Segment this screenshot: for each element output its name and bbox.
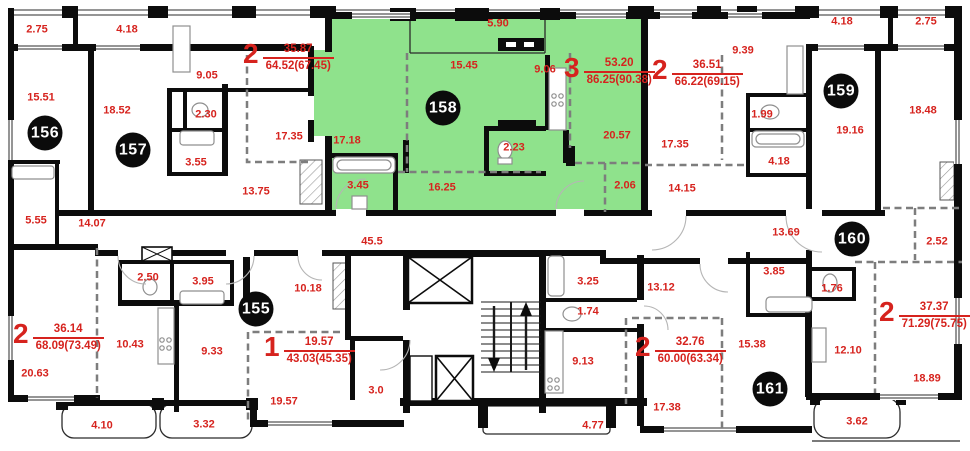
unit-number-badge[interactable]: 159: [824, 74, 859, 109]
room-area-label: 5.55: [25, 216, 46, 227]
unit-number-badge[interactable]: 157: [116, 133, 151, 168]
room-area-label: 18.48: [909, 106, 937, 117]
room-area-label: 3.25: [577, 277, 598, 288]
room-area-label: 15.38: [738, 340, 766, 351]
room-area-label: 3.32: [193, 420, 214, 431]
unit-number-badge[interactable]: 155: [239, 292, 274, 327]
room-area-label: 3.85: [763, 267, 784, 278]
room-area-label: 19.57: [270, 397, 298, 408]
room-area-label: 5.90: [487, 19, 508, 30]
apartment-type-label: 236.5166.22(69.15): [652, 58, 743, 89]
room-area-label: 2.75: [915, 17, 936, 28]
room-area-label: 16.25: [428, 183, 456, 194]
apartment-total-area: 68.09(73.49): [33, 337, 104, 353]
room-area-label: 17.38: [653, 403, 681, 414]
room-area-label: 9.06: [534, 65, 555, 76]
room-area-label: 13.12: [647, 283, 675, 294]
apartment-type-label: 235.8764.52(67.45): [243, 42, 334, 73]
room-area-label: 20.63: [21, 369, 49, 380]
apartment-rooms-count: 2: [13, 322, 29, 346]
room-area-label: 14.07: [78, 219, 106, 230]
room-area-label: 17.35: [275, 132, 303, 143]
room-area-label: 2.50: [137, 273, 158, 284]
room-area-label: 15.45: [450, 61, 478, 72]
room-area-label: 1.99: [751, 110, 772, 121]
unit-number-badge[interactable]: 156: [28, 116, 63, 151]
room-area-label: 15.51: [27, 93, 55, 104]
apartment-type-label: 237.3771.29(75.75): [879, 300, 970, 331]
room-area-label: 4.18: [116, 25, 137, 36]
room-area-label: 10.43: [116, 340, 144, 351]
apartment-living-area: 19.57: [302, 336, 337, 350]
apartment-total-area: 86.25(90.38): [584, 71, 655, 87]
room-area-label: 2.30: [195, 110, 216, 121]
room-area-label: 2.06: [614, 181, 635, 192]
vent-shaft: [142, 247, 172, 261]
room-area-label: 18.52: [103, 106, 131, 117]
room-area-label: 18.89: [913, 374, 941, 385]
apartment-living-area: 36.51: [690, 59, 725, 73]
room-area-label: 1.76: [821, 284, 842, 295]
apartment-total-area: 64.52(67.45): [263, 57, 334, 73]
room-area-label: 3.95: [192, 277, 213, 288]
room-area-label: 4.10: [91, 421, 112, 432]
apartment-total-area: 43.03(45.35): [284, 350, 355, 366]
apartment-living-area: 53.20: [602, 57, 637, 71]
room-area-label: 2.23: [503, 143, 524, 154]
apartment-total-area: 71.29(75.75): [899, 315, 970, 331]
room-area-label: 4.18: [831, 17, 852, 28]
room-area-label: 4.77: [582, 421, 603, 432]
room-area-label: 2.75: [26, 25, 47, 36]
room-area-label: 4.18: [768, 157, 789, 168]
room-area-label: 1.74: [577, 307, 598, 318]
room-area-label: 9.05: [196, 71, 217, 82]
apartment-living-area: 35.87: [281, 43, 316, 57]
apartment-rooms-count: 2: [879, 300, 895, 324]
room-area-label: 3.45: [347, 181, 368, 192]
room-area-label: 3.62: [846, 417, 867, 428]
apartment-type-label: 119.5743.03(45.35): [264, 335, 355, 366]
elevator-shafts: [408, 257, 473, 401]
staircase: [481, 302, 541, 372]
apartment-rooms-count: 2: [243, 42, 259, 66]
apartment-living-area: 36.14: [51, 323, 86, 337]
room-area-label: 13.75: [242, 187, 270, 198]
apartment-total-area: 60.00(63.34): [655, 350, 726, 366]
apartment-type-label: 353.2086.25(90.38): [564, 56, 655, 87]
floor-plan: 2.754.1815.5118.529.052.303.5517.3513.75…: [0, 0, 970, 451]
unit-number-badge[interactable]: 160: [835, 222, 870, 257]
unit-number-badge[interactable]: 158: [426, 91, 461, 126]
apartment-total-area: 66.22(69.15): [672, 73, 743, 89]
room-area-label: 9.13: [572, 357, 593, 368]
unit-number-badge[interactable]: 161: [753, 372, 788, 407]
room-area-label: 10.18: [294, 284, 322, 295]
room-area-label: 3.0: [368, 386, 383, 397]
apartment-rooms-count: 1: [264, 335, 280, 359]
room-area-label: 17.18: [333, 136, 361, 147]
room-area-label: 45.5: [361, 237, 382, 248]
room-area-label: 19.16: [836, 126, 864, 137]
room-area-label: 9.33: [201, 347, 222, 358]
apartment-rooms-count: 3: [564, 56, 580, 80]
room-area-label: 14.15: [668, 184, 696, 195]
apartment-rooms-count: 2: [635, 335, 651, 359]
room-area-label: 3.55: [185, 158, 206, 169]
room-area-label: 9.39: [732, 46, 753, 57]
room-area-label: 2.52: [926, 237, 947, 248]
apartment-living-area: 32.76: [673, 336, 708, 350]
apartment-rooms-count: 2: [652, 58, 668, 82]
floor-plan-drawing: [0, 0, 970, 451]
room-area-label: 12.10: [834, 346, 862, 357]
room-area-label: 20.57: [603, 131, 631, 142]
apartment-type-label: 236.1468.09(73.49): [13, 322, 104, 353]
room-area-label: 13.69: [772, 228, 800, 239]
apartment-living-area: 37.37: [917, 301, 952, 315]
room-area-label: 17.35: [661, 140, 689, 151]
apartment-type-label: 232.7660.00(63.34): [635, 335, 726, 366]
